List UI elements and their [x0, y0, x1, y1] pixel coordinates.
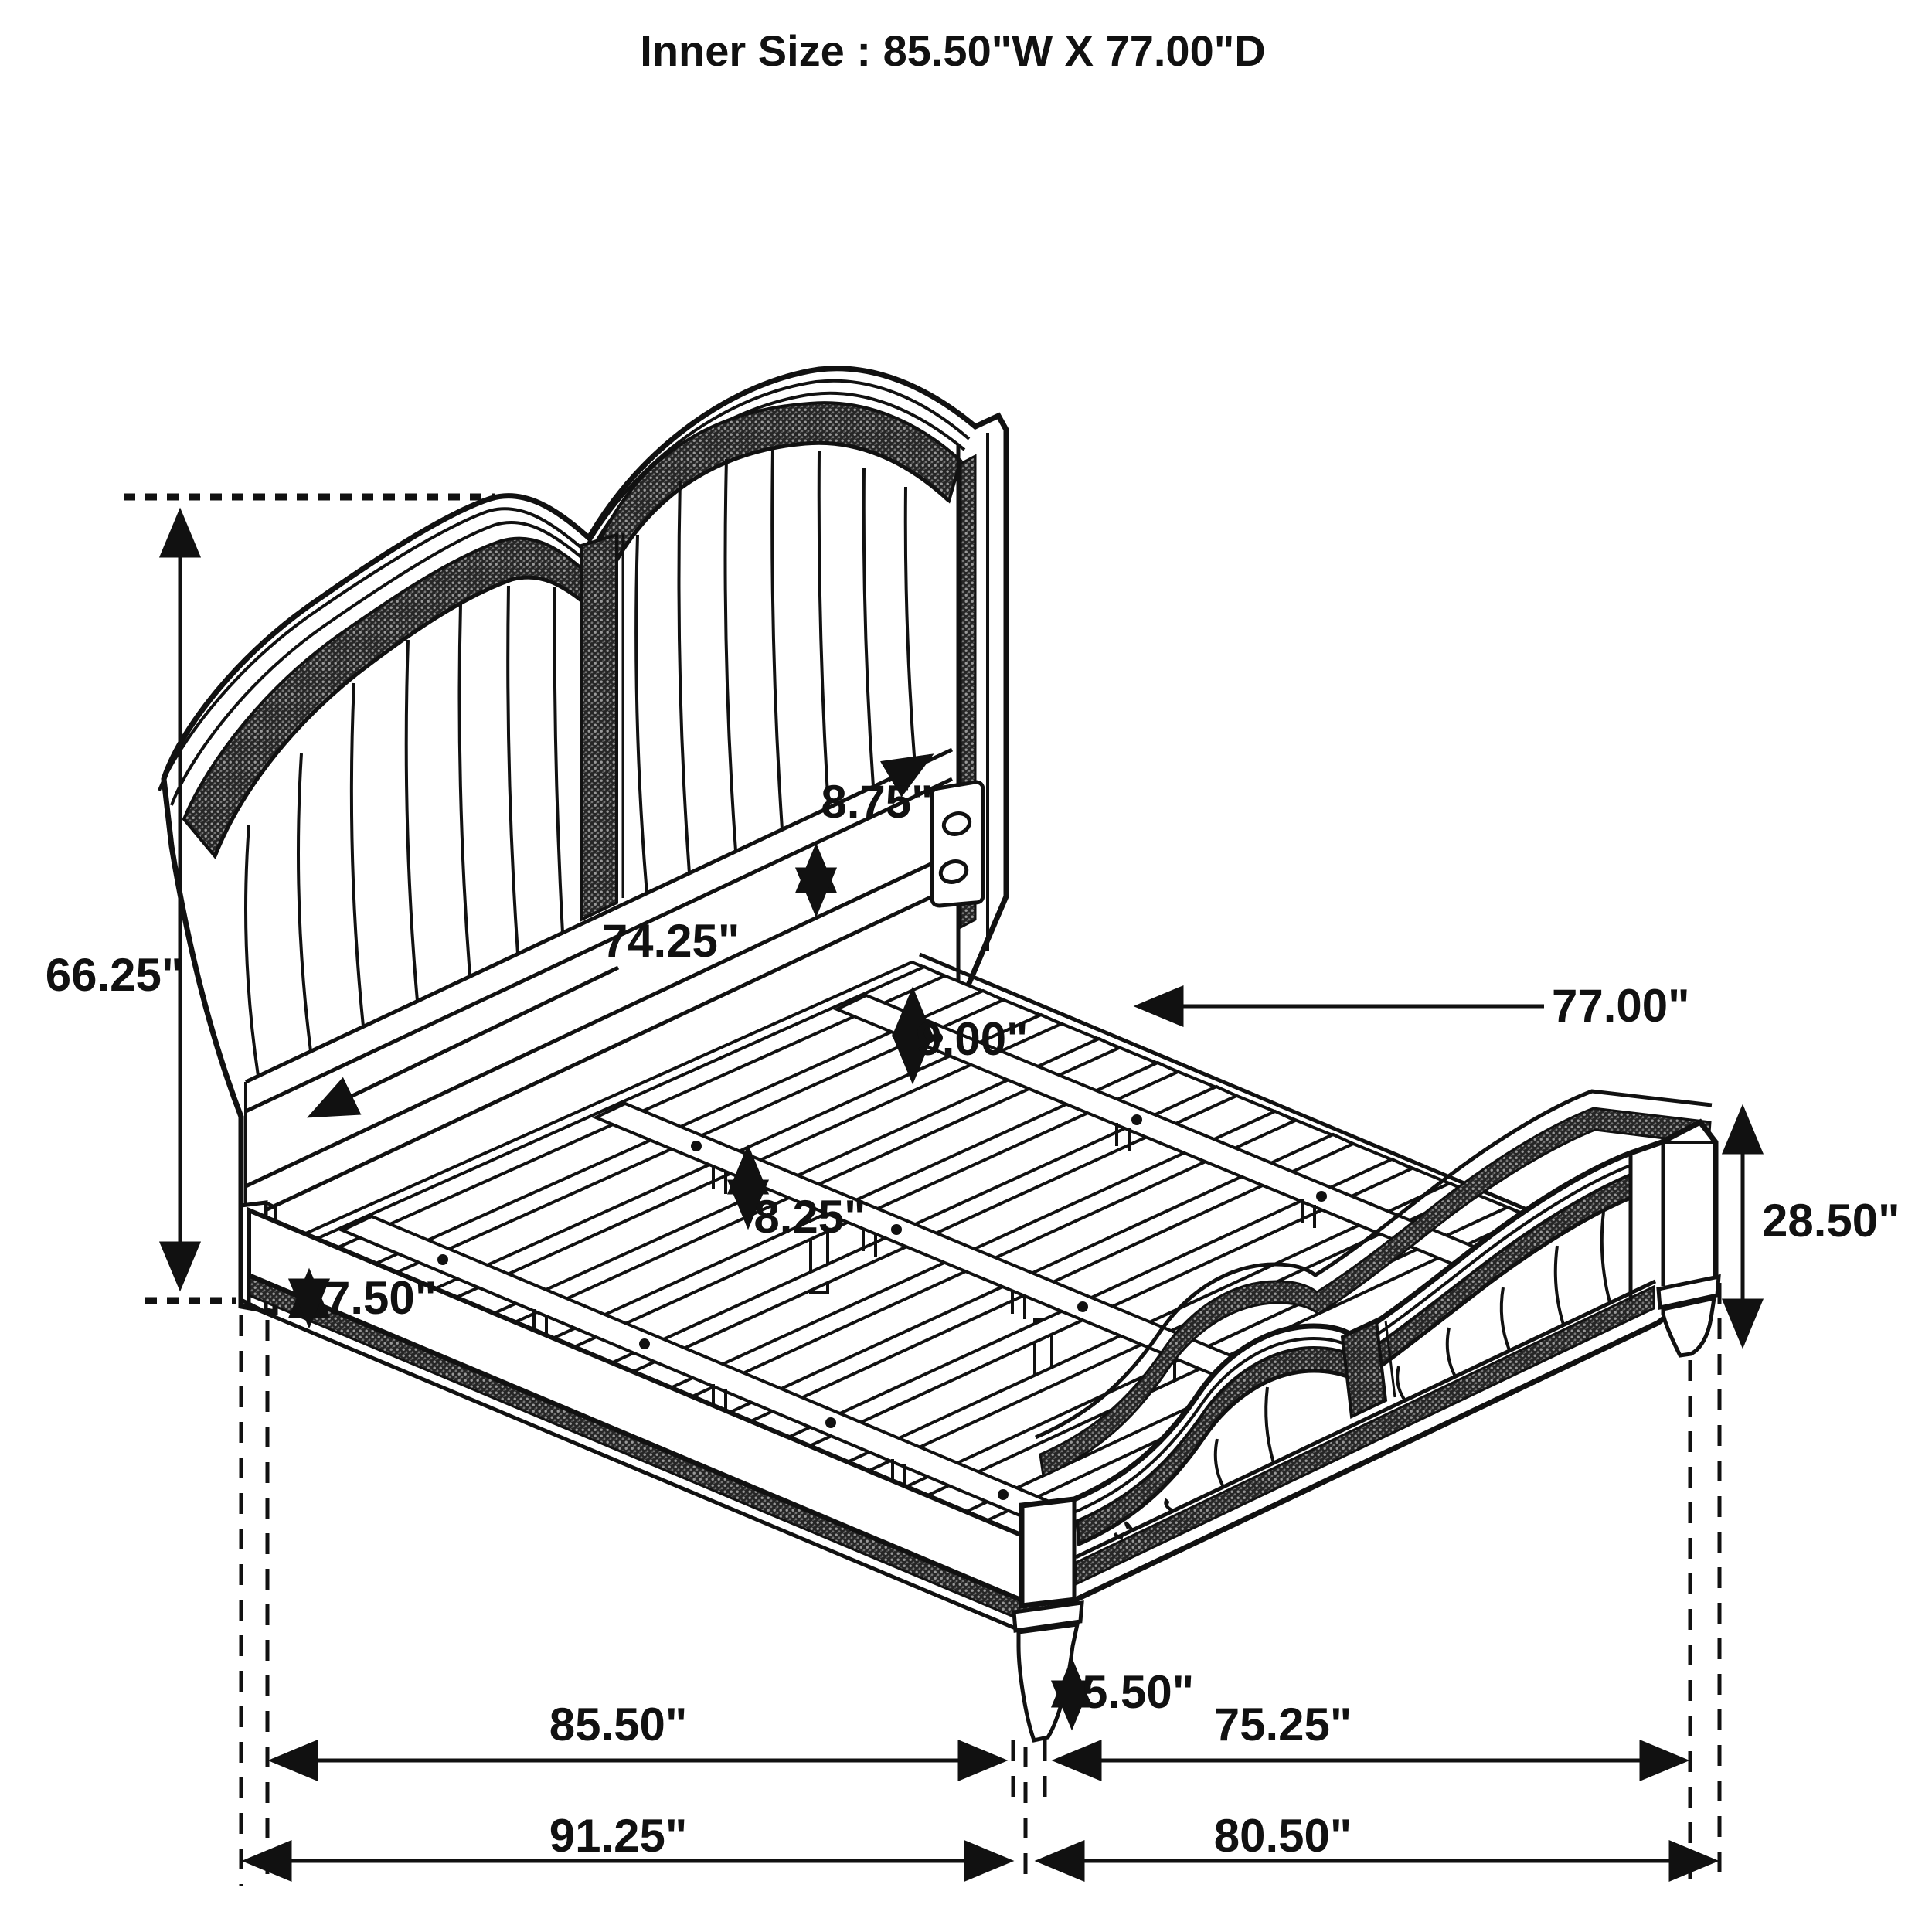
svg-text:85.50": 85.50" [549, 1699, 688, 1750]
svg-text:8.25": 8.25" [753, 1191, 866, 1243]
dim-footboard-leg: 5.50" [1072, 1662, 1194, 1726]
dim-footboard-height: 28.50" [1743, 1108, 1900, 1345]
rail-bracket [932, 782, 983, 906]
bed-dimension-diagram: Inner Size : 85.50"W X 77.00"D 66.25" 7.… [0, 0, 1932, 1932]
svg-text:5.50": 5.50" [1082, 1666, 1194, 1718]
footboard-right-foot [1663, 1298, 1714, 1355]
svg-text:9.00": 9.00" [916, 1013, 1028, 1065]
svg-text:75.25": 75.25" [1214, 1699, 1352, 1750]
svg-text:74.25": 74.25" [602, 915, 740, 967]
svg-text:8.75": 8.75" [821, 776, 933, 828]
dim-slat-length: 77.00" [1138, 980, 1690, 1032]
dim-rail-clearance: 7.50" [309, 1272, 437, 1325]
svg-text:7.50": 7.50" [325, 1272, 437, 1324]
svg-text:80.50": 80.50" [1214, 1810, 1352, 1862]
diagram-title: Inner Size : 85.50"W X 77.00"D [640, 26, 1265, 75]
dim-outer-length: 91.25" [246, 1810, 1010, 1862]
svg-text:66.25": 66.25" [46, 949, 184, 1001]
svg-text:77.00": 77.00" [1552, 980, 1690, 1032]
svg-text:28.50": 28.50" [1762, 1195, 1900, 1247]
svg-text:91.25": 91.25" [549, 1810, 688, 1862]
footboard-left-foot [1019, 1624, 1077, 1740]
dim-inner-width: 85.50" [272, 1699, 1004, 1760]
dim-footboard-outer-width: 80.50" [1039, 1810, 1715, 1862]
